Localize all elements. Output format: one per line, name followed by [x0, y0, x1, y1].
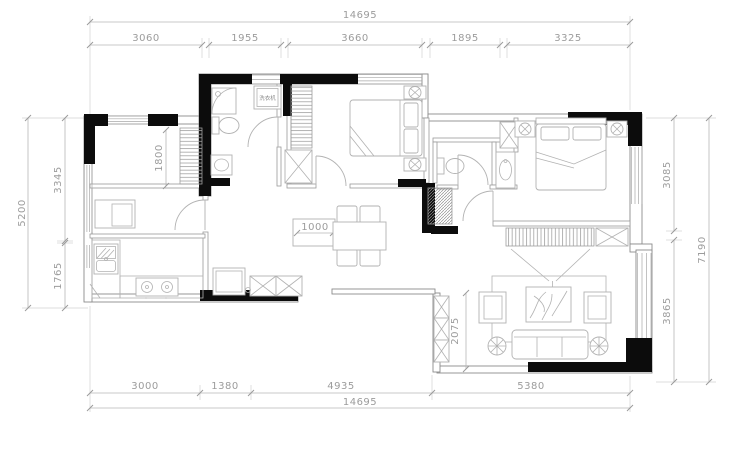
pillow — [541, 127, 569, 140]
dim-left-seg: 1765 — [53, 262, 64, 289]
dining-chair — [337, 206, 357, 223]
vanity-sink — [496, 152, 515, 188]
nightstand — [404, 86, 426, 99]
armchair — [584, 292, 611, 323]
washing-machine-label: 洗衣机 — [259, 94, 276, 102]
balcony-wall-strip — [434, 296, 449, 362]
dim-top-seg: 1955 — [231, 33, 258, 44]
coffee-table — [526, 287, 571, 322]
fridge — [213, 268, 251, 295]
dim-top-seg: 1895 — [451, 33, 478, 44]
column-box-bedroom1 — [285, 150, 312, 183]
dimension-chain-right: 3085 3865 7190 — [662, 115, 712, 385]
washing-machine: 洗衣机 — [254, 86, 281, 109]
nightstand — [515, 121, 535, 137]
dim-bottom-seg: 4935 — [327, 381, 354, 392]
dim-right-overall: 7190 — [697, 236, 708, 263]
dim-left-overall: 5200 — [17, 199, 28, 226]
hall-door — [175, 200, 205, 230]
dim-right-seg: 3865 — [662, 297, 673, 324]
sofa — [512, 330, 588, 359]
dining-area: 1000 — [293, 206, 386, 266]
column-box-living — [596, 228, 628, 246]
svg-text:2075: 2075 — [450, 317, 461, 344]
bedroom1-door — [316, 156, 346, 186]
toilet-2 — [437, 158, 464, 174]
headboard — [536, 118, 606, 124]
pillow — [573, 127, 601, 140]
living-room — [479, 249, 611, 359]
entry-closet — [180, 128, 202, 184]
dim-top-seg: 3325 — [554, 33, 581, 44]
dim-bottom-seg: 5380 — [517, 381, 544, 392]
dim-right-seg: 3085 — [662, 161, 673, 188]
dim-top-overall: 14695 — [343, 10, 377, 21]
pillow — [404, 103, 418, 127]
dimension-chain-top: 14695 3060 1955 3660 1895 3325 — [87, 10, 633, 48]
duct-shaft — [428, 188, 452, 224]
dimension-chain-bottom: 3000 1380 4935 5380 14695 — [87, 381, 633, 411]
kitchen-low-cabinets — [250, 276, 302, 296]
kitchen — [92, 240, 251, 298]
tv — [511, 249, 590, 287]
dining-chair — [337, 249, 357, 266]
floor-plan-page: 14695 3060 1955 3660 1895 3325 3000 1380… — [0, 0, 740, 450]
dim-top-seg: 3060 — [132, 33, 159, 44]
dining-chair — [360, 249, 380, 266]
bathroom-2 — [437, 152, 515, 188]
bedroom-2 — [463, 118, 627, 221]
bedroom-1 — [316, 86, 426, 186]
svg-text:1800: 1800 — [154, 144, 165, 171]
dim-bottom-seg: 3000 — [131, 381, 158, 392]
master-door — [463, 191, 493, 221]
dim-bottom-overall: 14695 — [343, 397, 377, 408]
dining-chair — [360, 206, 380, 223]
entry-hall — [95, 200, 205, 230]
floor-lamp — [590, 337, 608, 355]
floor-lamp — [488, 337, 506, 355]
sideboard: 1000 — [293, 219, 336, 246]
dim-bottom-seg: 1380 — [211, 381, 238, 392]
kitchen-sink — [94, 244, 118, 274]
tv-cabinet — [506, 228, 594, 246]
nightstand — [607, 121, 627, 137]
bathroom-1: 洗衣机 — [211, 86, 281, 175]
dimension-chain-left: 5200 3345 1765 — [17, 115, 68, 311]
pillow — [404, 129, 418, 153]
dim-sideboard: 1000 — [301, 222, 328, 233]
sink-1 — [211, 155, 232, 175]
stove — [136, 278, 178, 298]
shower-tray — [212, 88, 236, 114]
nightstand — [404, 158, 426, 171]
dim-top-seg: 3660 — [341, 33, 368, 44]
dim-left-seg: 3345 — [53, 166, 64, 193]
dim-closet: 1800 — [154, 127, 169, 189]
dim-balcony: 2075 — [450, 290, 469, 372]
floor-plan-svg: 14695 3060 1955 3660 1895 3325 3000 1380… — [0, 0, 740, 450]
dining-table — [333, 222, 386, 250]
armchair — [479, 292, 506, 323]
bathroom1-door — [248, 117, 278, 147]
bedroom1-wardrobe — [291, 86, 312, 148]
toilet-1 — [212, 117, 239, 134]
